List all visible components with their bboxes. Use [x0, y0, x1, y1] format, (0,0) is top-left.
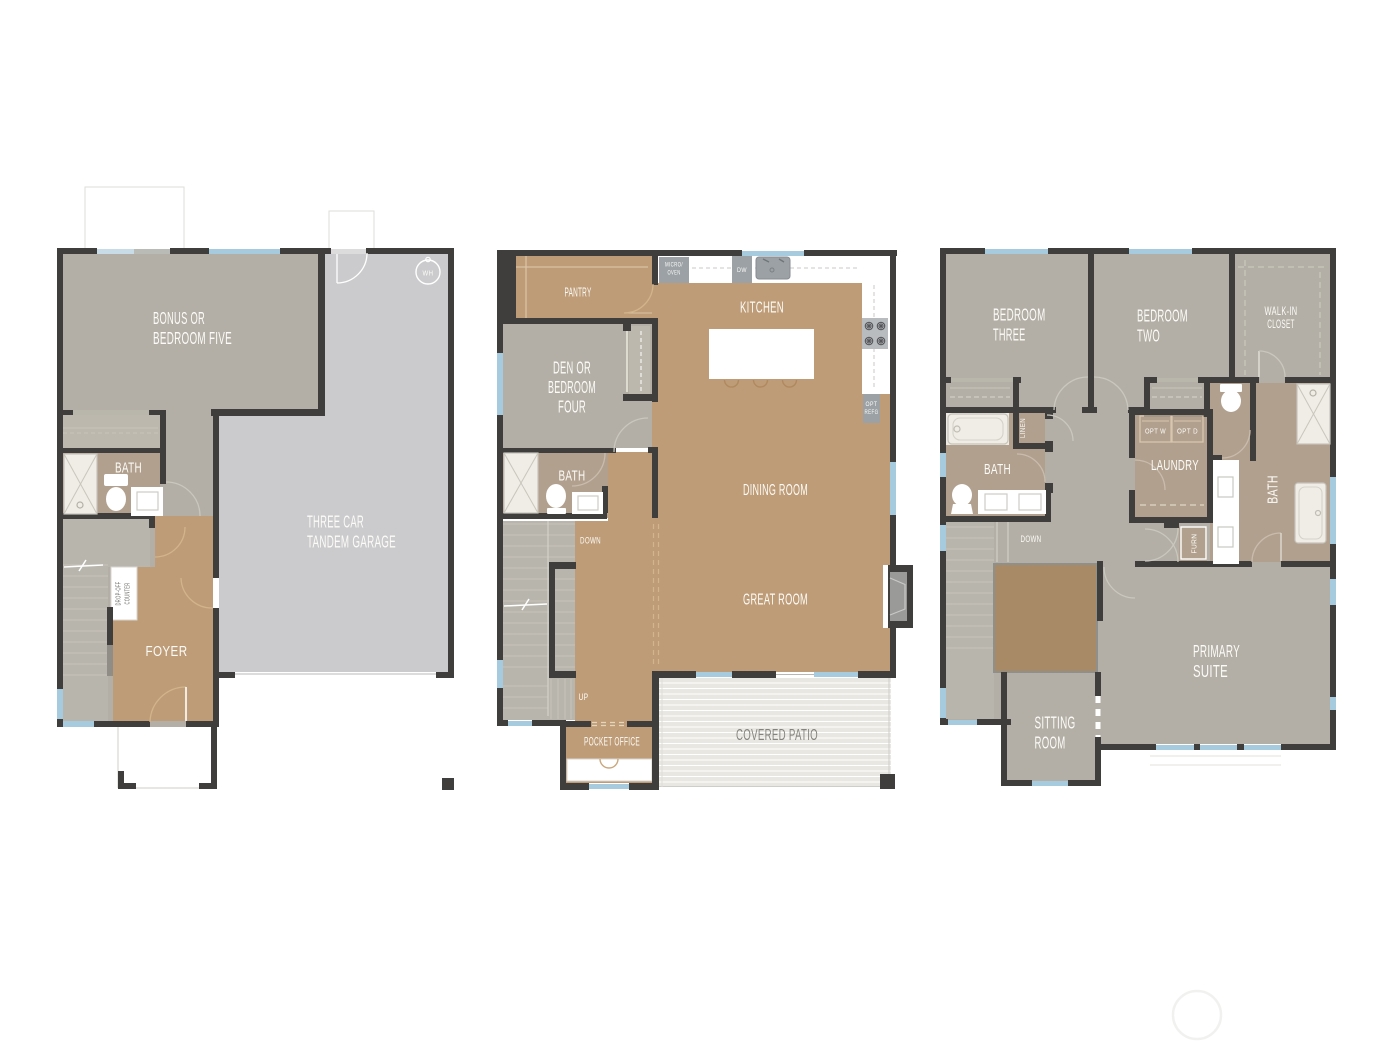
svg-text:SITTING: SITTING [1035, 712, 1076, 732]
svg-text:OPT D: OPT D [1177, 427, 1198, 436]
svg-text:DW: DW [737, 268, 747, 274]
svg-text:KITCHEN: KITCHEN [740, 300, 784, 317]
svg-text:FOUR: FOUR [558, 396, 586, 416]
svg-text:DROP-OFF: DROP-OFF [116, 582, 123, 606]
svg-text:CLOSET: CLOSET [1267, 319, 1295, 331]
svg-text:THREE CAR: THREE CAR [307, 511, 364, 531]
svg-text:POCKET OFFICE: POCKET OFFICE [584, 737, 640, 749]
svg-text:COUNTER: COUNTER [125, 583, 132, 605]
svg-text:OPT: OPT [866, 402, 878, 408]
svg-text:THREE: THREE [993, 324, 1026, 344]
svg-text:PRIMARY: PRIMARY [1193, 641, 1240, 661]
svg-text:PANTRY: PANTRY [565, 286, 592, 300]
svg-text:FOYER: FOYER [146, 643, 188, 660]
svg-text:MICRO/: MICRO/ [665, 263, 683, 269]
svg-text:BATH: BATH [984, 461, 1011, 478]
svg-text:ROOM: ROOM [1035, 732, 1066, 752]
svg-text:BONUS OR: BONUS OR [153, 308, 205, 328]
svg-text:WALK-IN: WALK-IN [1265, 306, 1298, 318]
svg-text:DINING ROOM: DINING ROOM [743, 482, 808, 499]
svg-text:SUITE: SUITE [1193, 661, 1228, 681]
svg-text:REFG: REFG [865, 410, 879, 416]
svg-text:TWO: TWO [1137, 325, 1160, 345]
svg-text:BATH: BATH [115, 459, 142, 476]
svg-text:BEDROOM: BEDROOM [1137, 305, 1188, 325]
svg-text:DOWN: DOWN [1021, 534, 1042, 545]
svg-text:BEDROOM FIVE: BEDROOM FIVE [153, 328, 232, 348]
svg-text:LINEN: LINEN [1020, 418, 1027, 438]
svg-text:BEDROOM: BEDROOM [993, 304, 1046, 324]
svg-text:LAUNDRY: LAUNDRY [1151, 457, 1199, 474]
svg-text:TANDEM GARAGE: TANDEM GARAGE [307, 531, 396, 551]
svg-text:UP: UP [579, 692, 589, 703]
svg-text:GREAT ROOM: GREAT ROOM [743, 591, 808, 608]
svg-text:DOWN: DOWN [580, 535, 601, 546]
svg-text:FURN: FURN [1190, 534, 1199, 554]
svg-text:BATH: BATH [1265, 475, 1282, 504]
svg-text:OVEN: OVEN [668, 271, 681, 277]
svg-text:BATH: BATH [559, 467, 586, 484]
svg-text:OPT W: OPT W [1145, 427, 1166, 436]
svg-text:WH: WH [423, 271, 434, 278]
svg-text:DEN OR: DEN OR [553, 357, 591, 377]
svg-text:BEDROOM: BEDROOM [548, 377, 596, 397]
svg-text:COVERED PATIO: COVERED PATIO [736, 727, 818, 744]
